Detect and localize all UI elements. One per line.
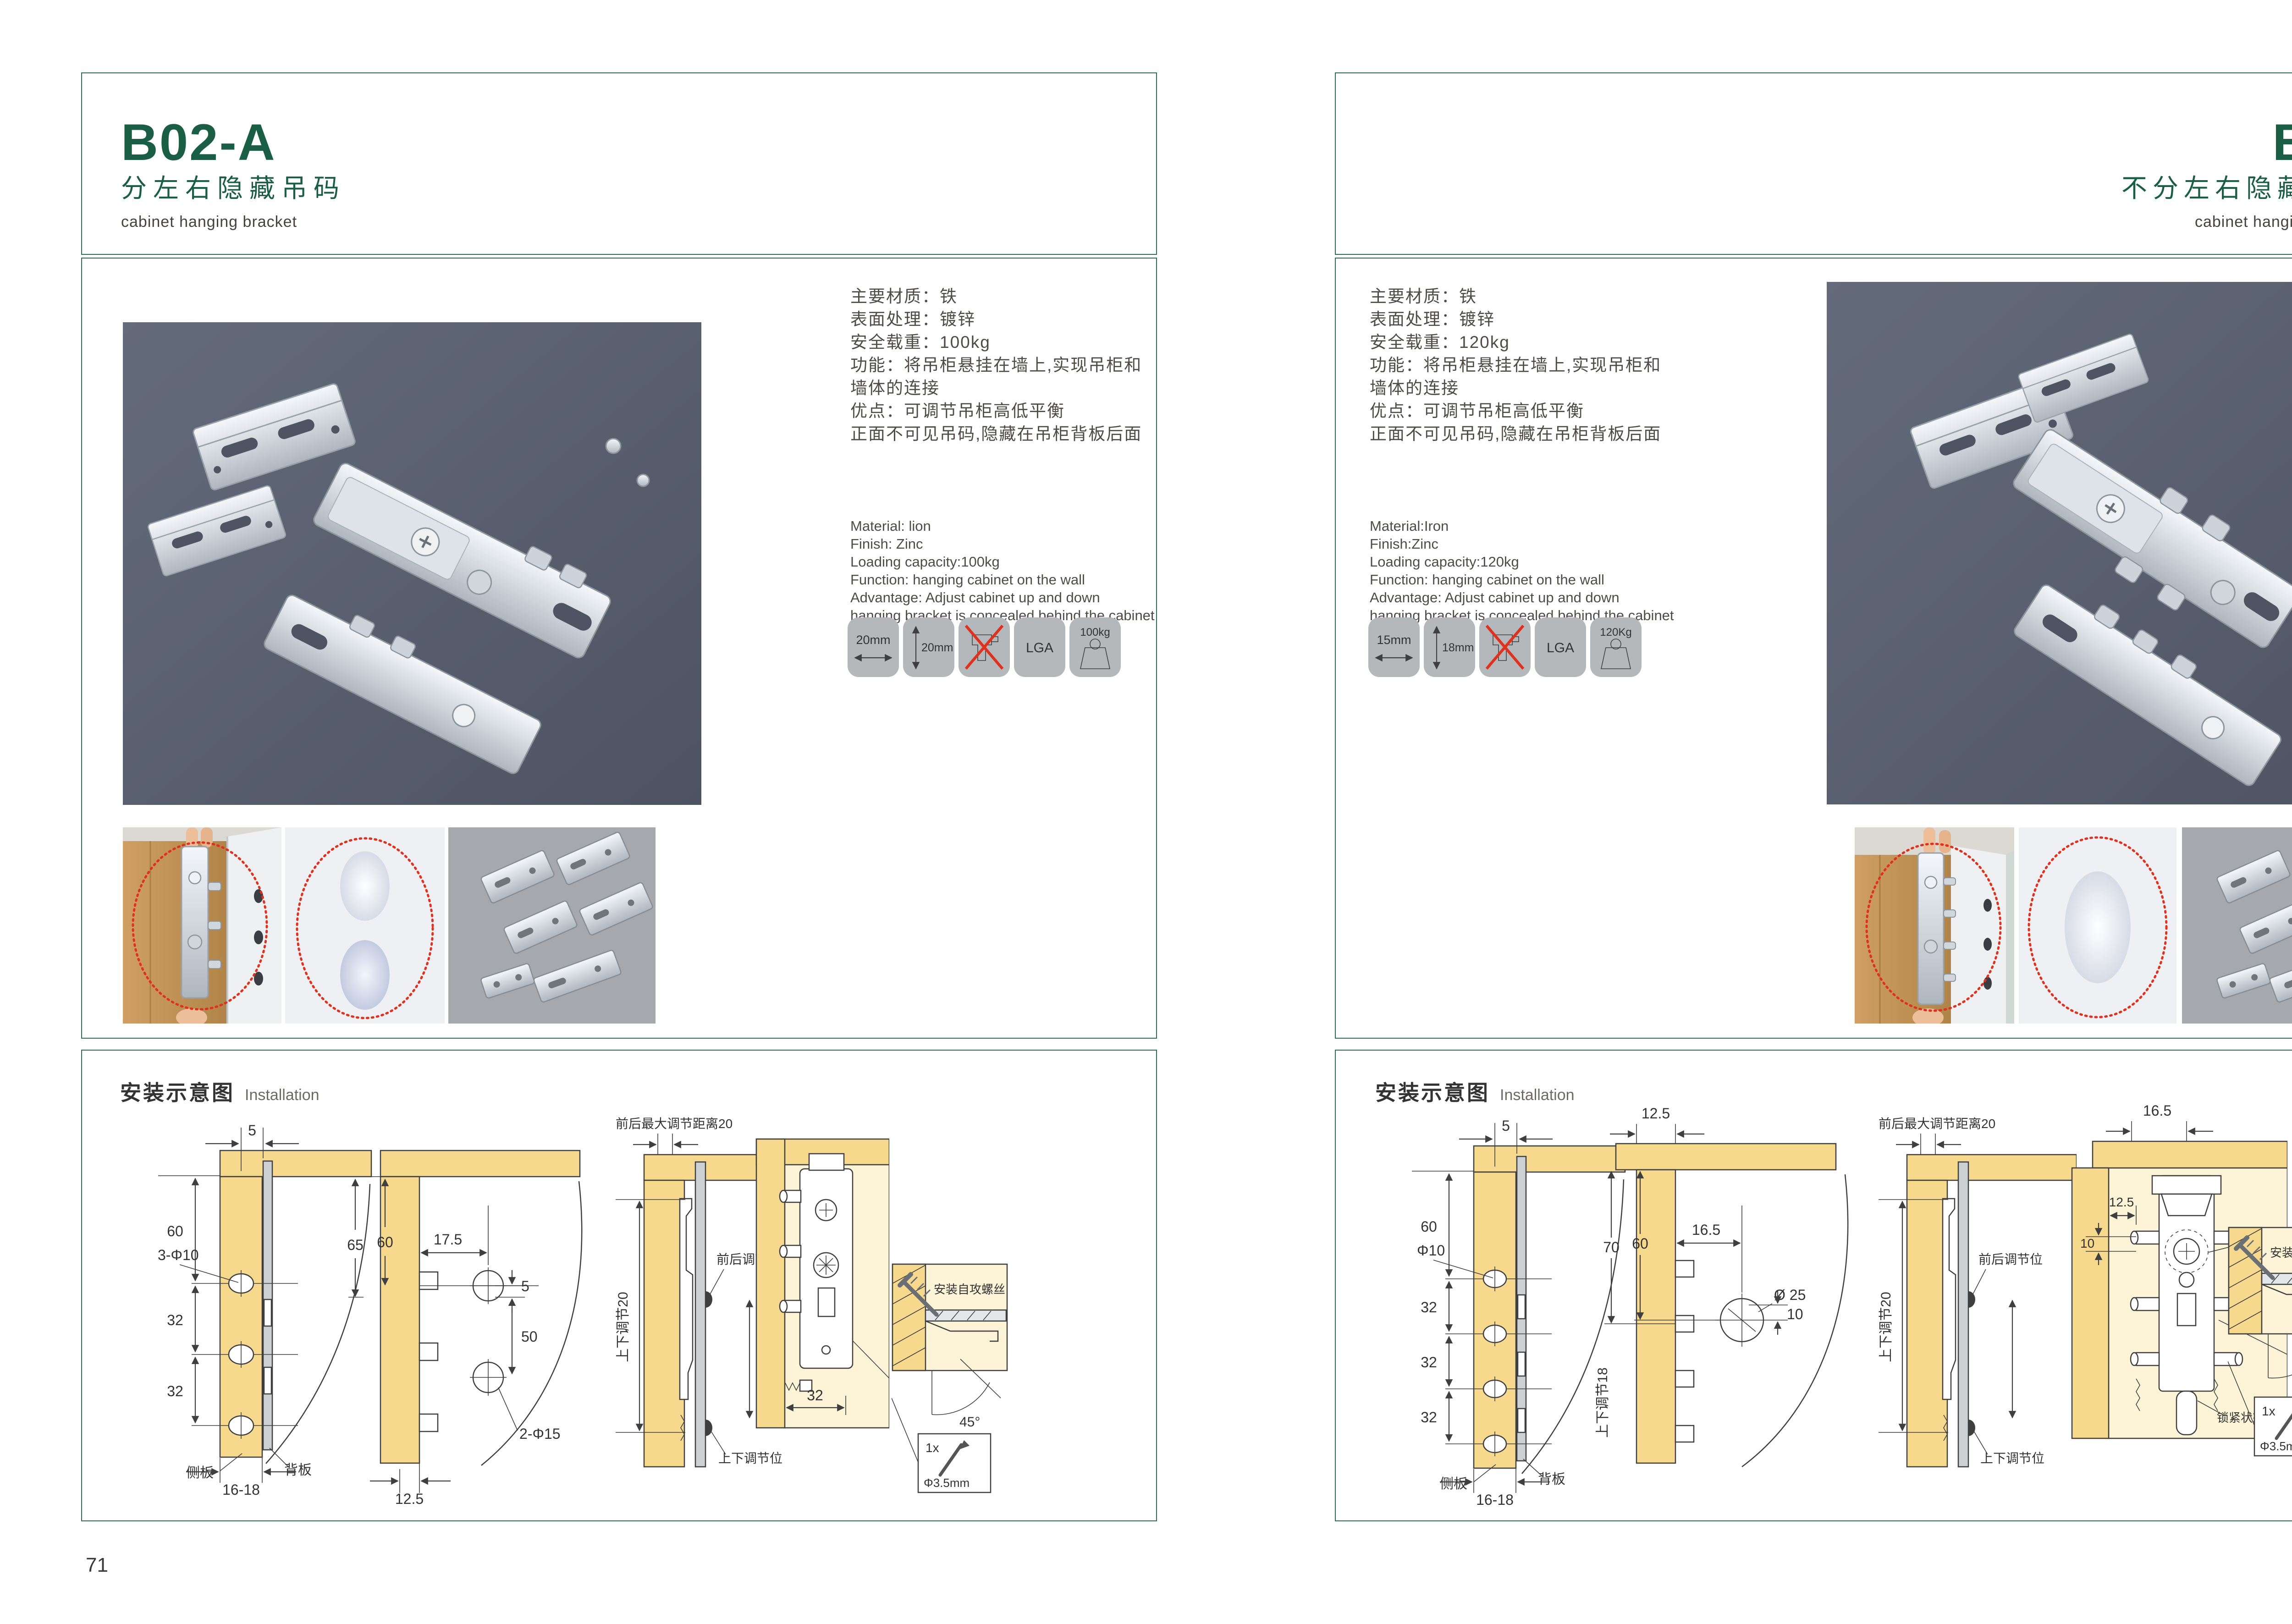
thumb-concealed xyxy=(2019,827,2176,1024)
specs-english: Material: lion Finish: Zinc Loading capa… xyxy=(850,517,1155,624)
spec-line: Loading capacity:120kg xyxy=(1370,553,1674,571)
spec-line: 墙体的连接 xyxy=(1370,377,1661,400)
spec-line: 安全载重：100kg xyxy=(850,331,1142,354)
install-title-en: Installation xyxy=(245,1086,320,1104)
icon-cert: LGA xyxy=(1014,617,1065,677)
diagram-screw-detail: 安装自攻螺丝 45° 1x Φ3.5mm xyxy=(2228,1224,2292,1481)
feature-icons: 15mm 18mm LGA 120Kg xyxy=(1368,617,1642,677)
icon-capacity: 120Kg xyxy=(1590,617,1642,677)
spec-line: 优点：可调节吊柜高低平衡 xyxy=(850,400,1142,423)
bracket-profile xyxy=(1943,1199,1956,1399)
spec-line: Function: hanging cabinet on the wall xyxy=(1370,571,1674,589)
dim-label: 5 xyxy=(248,1122,256,1139)
hole-spec-label: Φ10 xyxy=(1417,1242,1445,1259)
qty-label: 1x xyxy=(2262,1404,2275,1418)
dim-label: 16-18 xyxy=(222,1481,260,1497)
dim-label: 16.5 xyxy=(1692,1222,1720,1238)
thumb-parts xyxy=(2182,827,2292,1024)
spec-line: 墙体的连接 xyxy=(850,377,1142,400)
dim-label: 12.5 xyxy=(1642,1105,1670,1122)
dim-label: 32 xyxy=(1421,1409,1437,1426)
height-label: 20mm xyxy=(921,641,953,654)
hole-spec-label: 2-Φ15 xyxy=(519,1426,561,1442)
spec-line: Material:Iron xyxy=(1370,517,1674,535)
dim-label: 60 xyxy=(167,1223,183,1239)
icon-width: 20mm xyxy=(848,617,899,677)
dia-label: Φ3.5mm xyxy=(2260,1439,2292,1453)
dim-label: 12.5 xyxy=(395,1491,424,1506)
diagram-screw-detail: 安装自攻螺丝 45° 1x Φ3.5mm xyxy=(892,1261,1144,1517)
dim-label: 32 xyxy=(807,1387,823,1404)
adjust-range-label: 前后最大调节距离20 xyxy=(1879,1117,1995,1131)
dim-label: 60 xyxy=(1632,1235,1648,1252)
product-photo xyxy=(1827,282,2292,804)
dim-label: 60 xyxy=(377,1234,393,1250)
adjust-range-label: 前后最大调节距离20 xyxy=(616,1117,733,1131)
product-code: B03 xyxy=(1637,117,2292,168)
front-back-adjust-label: 前后调节位 xyxy=(1978,1252,2043,1266)
spec-line: 表面处理：镀锌 xyxy=(1370,308,1661,331)
thumb-installed xyxy=(1855,827,2014,1024)
product-title-en: cabinet hanging bracket xyxy=(121,214,346,230)
spec-line: 主要材质：铁 xyxy=(1370,285,1661,308)
dim-label: 65 xyxy=(347,1237,364,1253)
width-label: 15mm xyxy=(1377,633,1411,647)
spec-line: 正面不可见吊码,隐藏在吊柜背板后面 xyxy=(850,423,1142,446)
icon-height: 20mm xyxy=(903,617,954,677)
specs-english: Material:Iron Finish:Zinc Loading capaci… xyxy=(1370,517,1674,624)
thumb-installed xyxy=(123,827,281,1024)
spec-line: 功能：将吊柜悬挂在墙上,实现吊柜和 xyxy=(1370,354,1661,377)
cert-label: LGA xyxy=(1547,640,1574,655)
capacity-label: 120Kg xyxy=(1600,626,1631,639)
spec-line: Finish:Zinc xyxy=(1370,535,1674,553)
spec-line: Advantage: Adjust cabinet up and down xyxy=(1370,589,1674,606)
screw-note-label: 安装自攻螺丝 xyxy=(934,1283,1005,1296)
diagram-hole-positions: 12.5 16.5 70 60 Ø 25 10 上下调节18 xyxy=(1591,1100,1870,1508)
product-title-cn: 分左右隐藏吊码 xyxy=(121,176,346,201)
dim-label: 32 xyxy=(167,1312,183,1328)
icon-cert: LGA xyxy=(1535,617,1586,677)
dim-label: 17.5 xyxy=(434,1231,462,1248)
install-title-cn: 安装示意图 xyxy=(120,1076,235,1107)
back-panel-label: 背板 xyxy=(1538,1472,1565,1487)
specs-chinese: 主要材质：铁 表面处理：镀锌 安全载重：120kg 功能：将吊柜悬挂在墙上,实现… xyxy=(1370,285,1661,446)
side-panel-label: 侧板 xyxy=(1440,1476,1467,1492)
adjust-pin xyxy=(1968,1291,1975,1308)
dim-label: 5 xyxy=(521,1278,529,1294)
dim-label: 10 xyxy=(2080,1236,2094,1250)
screw xyxy=(606,439,621,453)
dim-label: 50 xyxy=(521,1328,538,1345)
back-panel-label: 背板 xyxy=(284,1463,312,1478)
spec-line: 正面不可见吊码,隐藏在吊柜背板后面 xyxy=(1370,423,1661,446)
cert-label: LGA xyxy=(1026,640,1053,655)
icon-no-drill xyxy=(1479,617,1531,677)
qty-label: 1x xyxy=(926,1441,939,1455)
dim-label: 5 xyxy=(1502,1118,1510,1134)
side-panel-label: 侧板 xyxy=(186,1465,214,1481)
spec-line: Function: hanging cabinet on the wall xyxy=(850,571,1155,589)
height-label: 18mm xyxy=(1442,641,1474,654)
dim-label: 32 xyxy=(1421,1354,1437,1371)
vertical-adjust-label: 上下调节18 xyxy=(1595,1367,1610,1437)
dim-label: 32 xyxy=(1421,1299,1437,1316)
angle-label: 45° xyxy=(959,1415,980,1430)
icon-no-drill xyxy=(959,617,1010,677)
screw-note-label: 安装自攻螺丝 xyxy=(2270,1246,2292,1260)
spec-line: Loading capacity:100kg xyxy=(850,553,1155,571)
dim-label: 16-18 xyxy=(1476,1492,1514,1506)
diagram-bracket-front: 32 xyxy=(731,1112,889,1469)
screw xyxy=(637,474,649,486)
header-box-left: B02-A 分左右隐藏吊码 cabinet hanging bracket xyxy=(81,72,1157,255)
dim-label: 32 xyxy=(167,1383,183,1399)
bracket xyxy=(182,847,208,998)
icon-capacity: 100kg xyxy=(1069,617,1121,677)
spec-line: Advantage: Adjust cabinet up and down xyxy=(850,589,1155,606)
feature-icons: 20mm 20mm LGA 100kg xyxy=(848,617,1121,677)
product-code: B02-A xyxy=(121,117,346,168)
specs-chinese: 主要材质：铁 表面处理：镀锌 安全载重：100kg 功能：将吊柜悬挂在墙上,实现… xyxy=(850,285,1142,446)
spec-line: 优点：可调节吊柜高低平衡 xyxy=(1370,400,1661,423)
diagram-hole-positions: 65 60 17.5 5 50 2-Φ15 12.5 xyxy=(342,1107,607,1506)
dim-label: 10 xyxy=(1787,1306,1803,1322)
dim-label: 70 xyxy=(1603,1239,1620,1255)
thumb-parts xyxy=(448,827,656,1024)
dim-label: 12.5 xyxy=(2109,1195,2134,1209)
thumb-concealed xyxy=(285,827,445,1024)
header-box-right: B03 不分左右隐藏吊码 cabinet hanging bracket xyxy=(1335,72,2292,255)
spec-line: 表面处理：镀锌 xyxy=(850,308,1142,331)
diagram-adjustment-section: 前后最大调节距离20 上下调节20 前后调节位 上下调节位 xyxy=(1875,1112,2077,1506)
adjust-pin xyxy=(705,1420,712,1436)
width-label: 20mm xyxy=(856,633,890,647)
icon-width: 15mm xyxy=(1368,617,1420,677)
install-title-en: Installation xyxy=(1500,1086,1575,1104)
icon-height: 18mm xyxy=(1424,617,1475,677)
hole-spec-label: 3-Φ10 xyxy=(158,1247,199,1263)
capacity-label: 100kg xyxy=(1080,626,1110,639)
vertical-adjust-label: 上下调节20 xyxy=(1879,1292,1894,1362)
dim-label: 16.5 xyxy=(2143,1102,2171,1119)
adjust-pin xyxy=(1968,1420,1975,1436)
dim-label: 60 xyxy=(1421,1218,1437,1235)
page-number: 71 xyxy=(86,1554,108,1577)
product-photo xyxy=(123,322,701,805)
weight-icon xyxy=(1080,648,1110,669)
adjust-pin xyxy=(705,1291,712,1308)
install-header: 安装示意图 Installation xyxy=(120,1076,320,1107)
up-down-adjust-label: 上下调节位 xyxy=(1980,1451,2044,1465)
product-title-en: cabinet hanging bracket xyxy=(1637,214,2292,230)
spec-line: 功能：将吊柜悬挂在墙上,实现吊柜和 xyxy=(850,354,1142,377)
spec-line: 安全载重：120kg xyxy=(1370,331,1661,354)
product-title-cn: 不分左右隐藏吊码 xyxy=(1637,176,2292,201)
spec-line: Material: lion xyxy=(850,517,1155,535)
weight-icon xyxy=(1601,648,1631,669)
hole-spec-label: Ø 25 xyxy=(1774,1287,1806,1303)
vertical-adjust-label: 上下调节20 xyxy=(616,1292,631,1362)
bracket-profile xyxy=(680,1199,693,1399)
bracket xyxy=(1918,853,1944,1004)
dia-label: Φ3.5mm xyxy=(924,1476,970,1490)
spec-line: Finish: Zinc xyxy=(850,535,1155,553)
spec-line: 主要材质：铁 xyxy=(850,285,1142,308)
